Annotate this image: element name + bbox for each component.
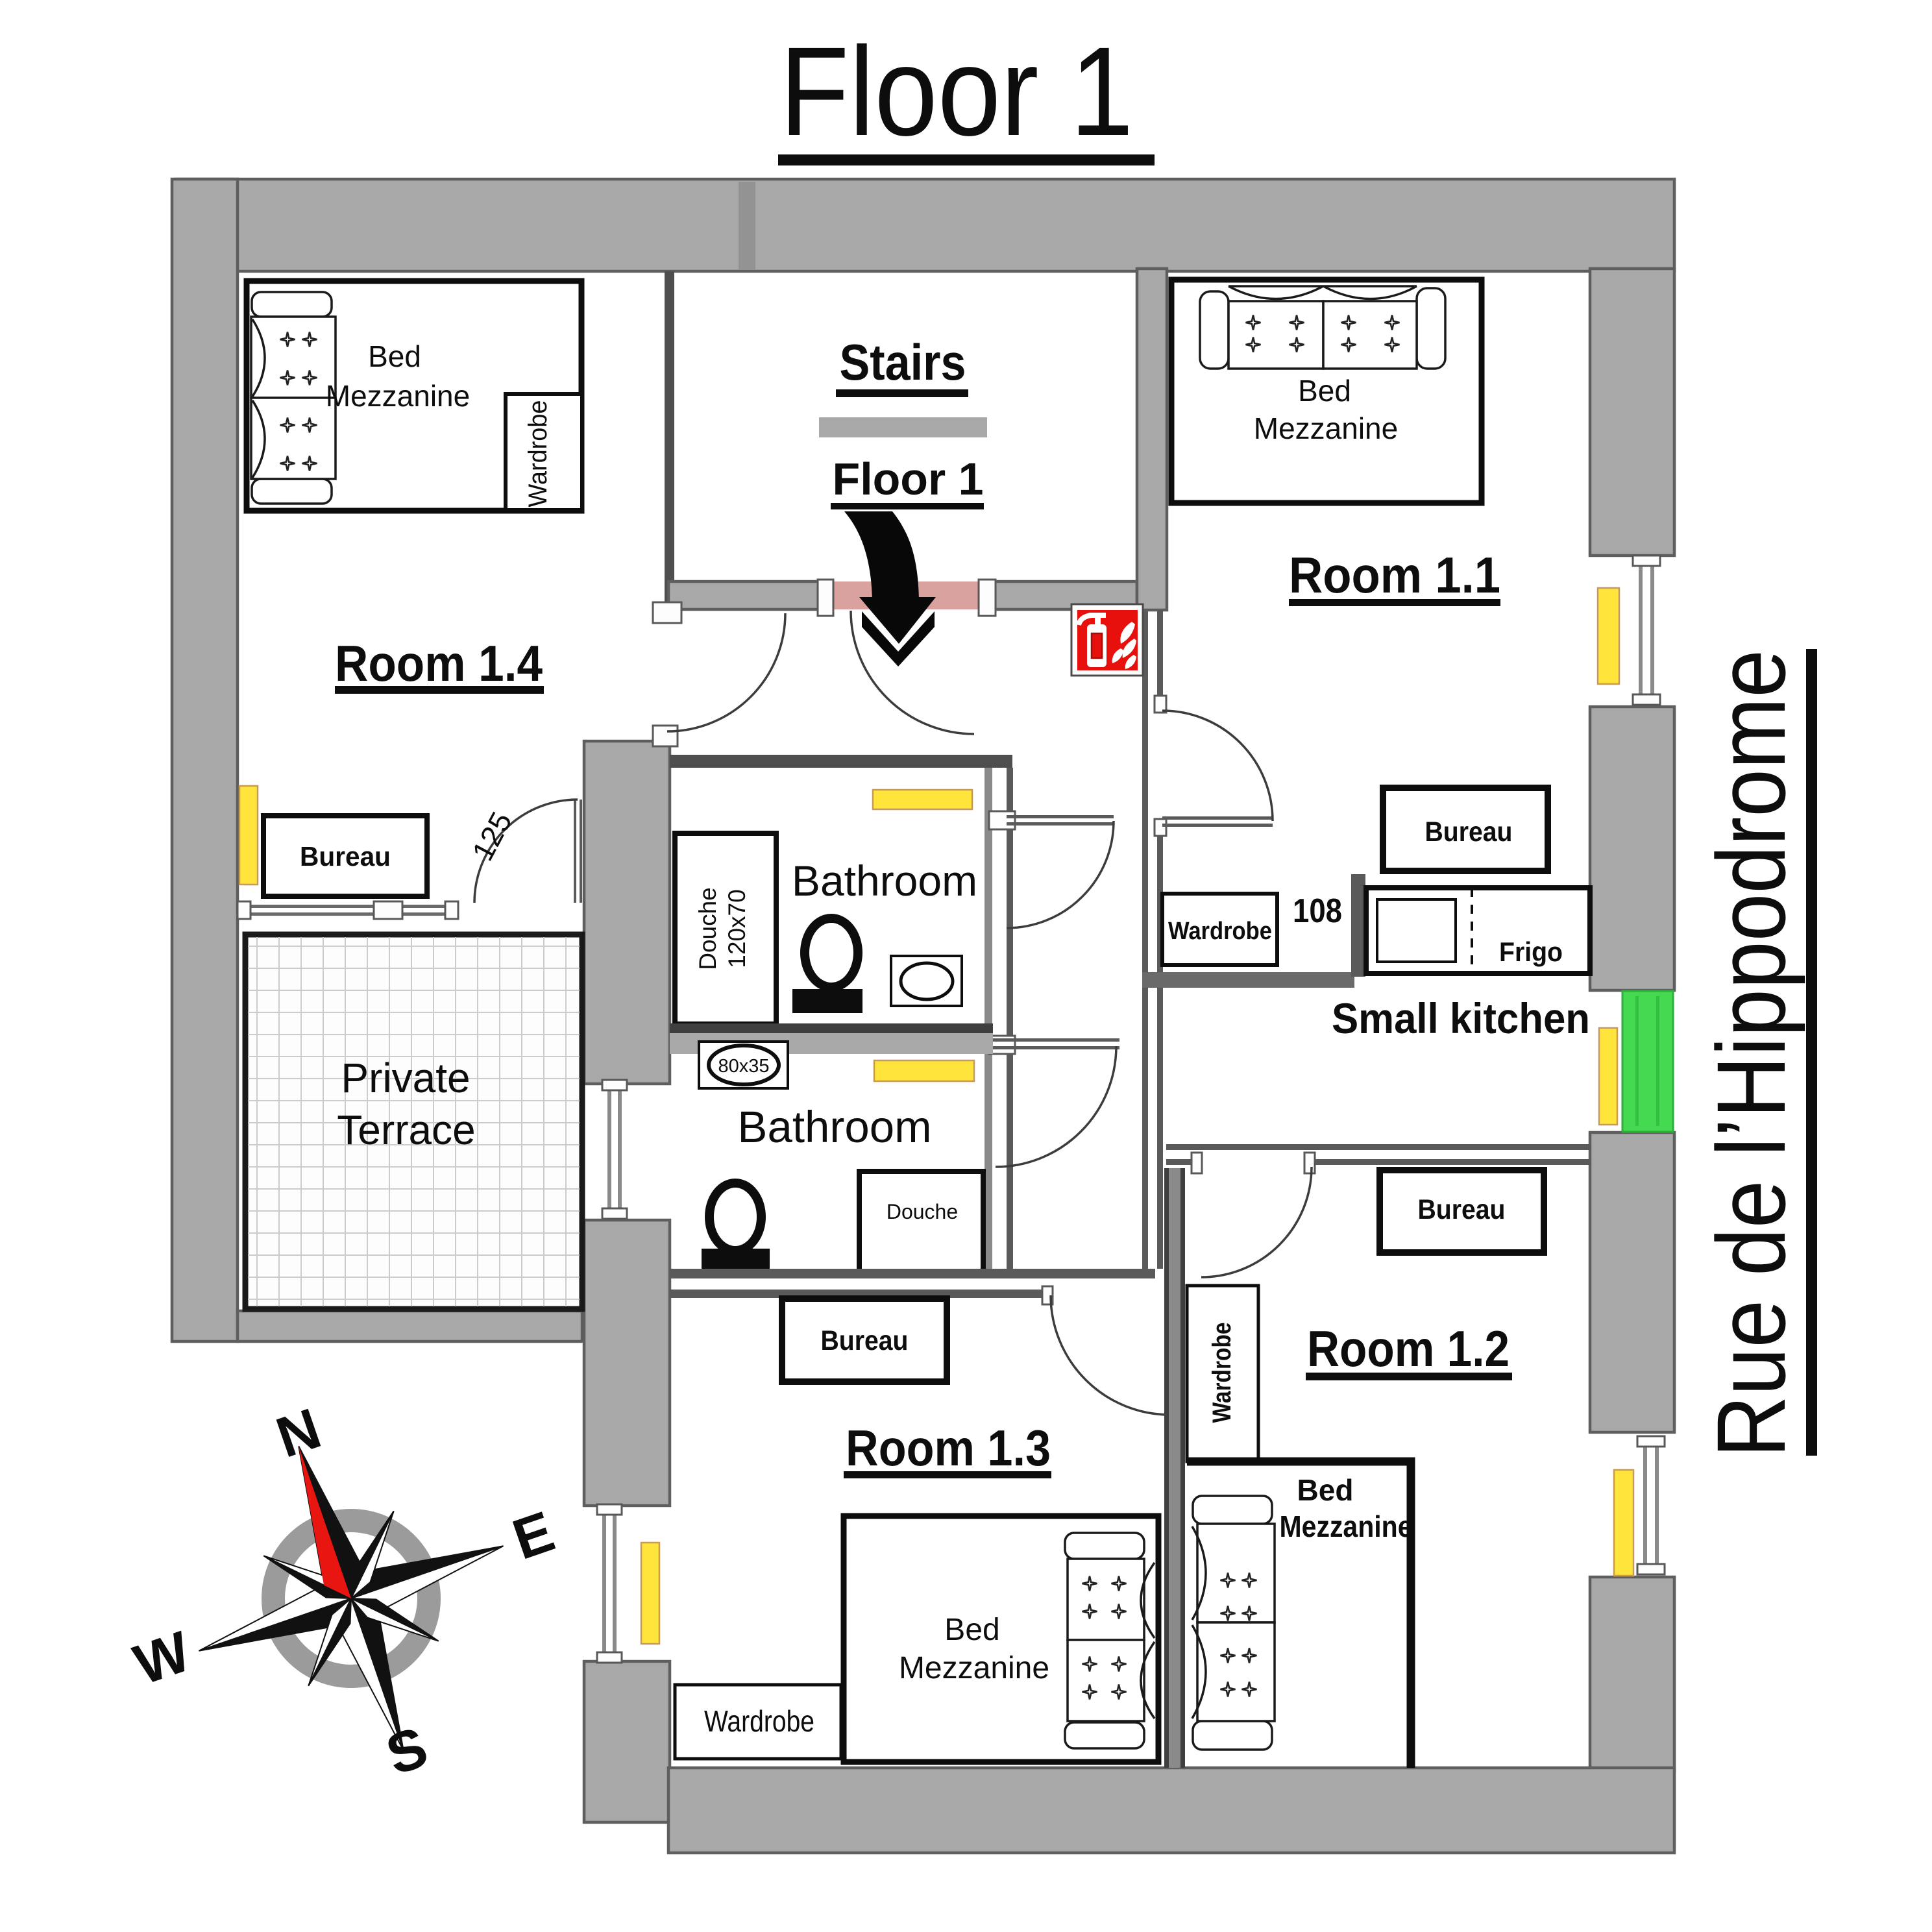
svg-text:Room 1.1: Room 1.1: [1289, 546, 1500, 604]
svg-text:N: N: [269, 1395, 328, 1469]
svg-text:Wardrobe: Wardrobe: [704, 1704, 814, 1738]
svg-text:Room 1.2: Room 1.2: [1307, 1320, 1510, 1377]
svg-text:Small kitchen: Small kitchen: [1332, 994, 1590, 1042]
svg-text:Bureau: Bureau: [1418, 1194, 1506, 1225]
svg-text:Wardrobe: Wardrobe: [1208, 1323, 1236, 1423]
svg-text:Bathroom: Bathroom: [792, 857, 977, 905]
svg-text:Bureau: Bureau: [821, 1325, 909, 1356]
svg-text:Bed: Bed: [1297, 1473, 1354, 1507]
svg-text:80x35: 80x35: [718, 1056, 769, 1077]
svg-text:Mezzanine: Mezzanine: [1280, 1510, 1413, 1543]
svg-text:Bed: Bed: [1298, 374, 1351, 408]
svg-text:Frigo: Frigo: [1499, 936, 1563, 967]
svg-text:Douche: Douche: [694, 887, 721, 970]
svg-text:Douche: Douche: [887, 1200, 958, 1223]
svg-text:Mezzanine: Mezzanine: [1254, 411, 1398, 445]
svg-text:Wardrobe: Wardrobe: [524, 400, 552, 507]
svg-text:Stairs: Stairs: [840, 334, 966, 391]
svg-text:Floor 1: Floor 1: [833, 454, 984, 504]
svg-text:Wardrobe: Wardrobe: [1168, 918, 1272, 945]
svg-text:108: 108: [1293, 892, 1342, 930]
svg-text:Floor 1: Floor 1: [780, 21, 1134, 162]
svg-text:E: E: [505, 1498, 562, 1572]
svg-text:Bureau: Bureau: [1425, 816, 1513, 848]
svg-text:Room 1.4: Room 1.4: [335, 635, 543, 692]
svg-text:Private: Private: [341, 1055, 470, 1101]
svg-text:Bathroom: Bathroom: [737, 1102, 931, 1152]
svg-text:120x70: 120x70: [724, 889, 750, 968]
svg-text:Bed: Bed: [368, 339, 421, 373]
svg-text:Bureau: Bureau: [300, 841, 391, 872]
svg-text:Terrace: Terrace: [337, 1107, 475, 1153]
svg-text:Bed: Bed: [944, 1613, 999, 1647]
svg-text:Rue de l’Hippodrome: Rue de l’Hippodrome: [1696, 650, 1805, 1458]
svg-text:W: W: [126, 1619, 198, 1697]
svg-text:Mezzanine: Mezzanine: [899, 1651, 1049, 1685]
svg-text:Mezzanine: Mezzanine: [326, 379, 470, 413]
svg-text:S: S: [378, 1714, 435, 1787]
svg-text:125: 125: [465, 806, 519, 866]
svg-text:Room 1.3: Room 1.3: [846, 1419, 1051, 1476]
